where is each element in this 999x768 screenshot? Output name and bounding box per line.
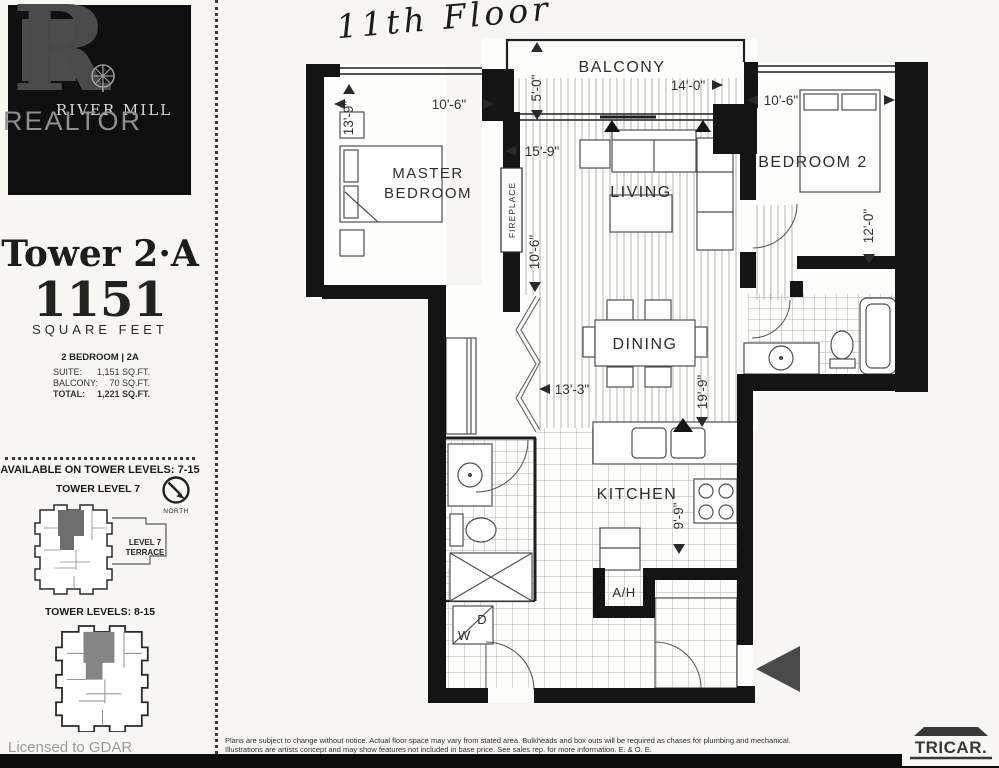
- living-label: LIVING: [610, 184, 671, 201]
- tower-levels-heading: TOWER LEVELS: 8-15: [20, 606, 180, 618]
- dim-living-width: 15'-9": [525, 144, 560, 159]
- bedroom2-pillow: [842, 94, 876, 110]
- dining-chair: [583, 327, 595, 357]
- waterwheel-icon: [88, 61, 118, 93]
- master-bedroom-label-2: BEDROOM: [384, 185, 472, 202]
- balcony-label: BALCONY: [579, 59, 666, 76]
- bedroom2-label: BEDROOM 2: [758, 154, 868, 171]
- bath-toilet-bowl: [831, 331, 853, 359]
- terrace-label-1: LEVEL 7: [129, 538, 162, 547]
- fireplace: FIREPLACE: [501, 168, 522, 252]
- dining-chair: [645, 367, 671, 387]
- floorplan-page: FIREPLACE BALCONY MASTER BEDROOM LIVING …: [0, 0, 999, 768]
- air-handler-label: A/H: [612, 585, 635, 600]
- rivermill-logo: R RIVER MILL: [8, 5, 191, 195]
- dining-label: DINING: [613, 336, 678, 353]
- dim-balcony-depth: 5'-0": [529, 74, 544, 101]
- bedroom2-pillow: [804, 94, 838, 110]
- kitchen-sink: [671, 428, 705, 458]
- keyplan-levels8-15: [30, 620, 175, 732]
- disclaimer-text: Plans are subject to change without noti…: [225, 736, 915, 754]
- bottom-bar: [0, 754, 999, 768]
- vertical-separator: [215, 0, 218, 754]
- dining-chair: [645, 300, 671, 320]
- kitchen-sink: [632, 428, 666, 458]
- armchair: [580, 140, 610, 168]
- dim-dining-depth: 19'-9": [695, 375, 710, 410]
- realtor-overlay-text: REALTOR: [3, 106, 142, 137]
- dim-master-width: 10'-6": [432, 97, 467, 112]
- fridge: [600, 528, 640, 570]
- disclaimer-line-2: Illustrations are artists concept and ma…: [225, 745, 915, 754]
- ensuite-sink-drain: [469, 474, 472, 477]
- stat-row-total: TOTAL: 1,221 SQ.FT.: [53, 389, 150, 400]
- tricar-logo-text: TRICAR.: [915, 738, 987, 757]
- area-value: 1151: [0, 272, 200, 328]
- stat-value: 1,221 SQ.FT.: [97, 389, 150, 400]
- dim-kitchen-depth: 9'-9": [671, 502, 686, 529]
- stat-label: BALCONY:: [53, 378, 98, 389]
- terrace-label-2: TERRACE: [126, 548, 165, 557]
- washer-label: W: [458, 628, 471, 643]
- tower-level7-heading: TOWER LEVEL 7: [18, 483, 178, 495]
- stat-label: SUITE:: [53, 367, 82, 378]
- dim-balcony-width: 14'-0": [671, 78, 706, 93]
- dim-living-depth: 10'-6": [527, 235, 542, 270]
- dotted-separator: [5, 457, 195, 460]
- tv-unit: [697, 138, 733, 250]
- master-nightstand: [340, 230, 364, 256]
- tower-title: Tower 2·A: [0, 233, 200, 275]
- fireplace-label: FIREPLACE: [507, 182, 517, 238]
- dim-bedroom2-depth: 12'-0": [861, 209, 876, 244]
- ensuite-toilet-tank: [450, 514, 463, 546]
- area-stats: SUITE: 1,151 SQ.FT. BALCONY: 70 SQ.FT. T…: [53, 367, 150, 400]
- entry-arrow: [756, 646, 800, 692]
- bath-toilet-base: [830, 359, 855, 368]
- tricar-logo: TRICAR.: [902, 722, 999, 766]
- availability-heading: AVAILABLE ON TOWER LEVELS: 7-15: [0, 464, 200, 476]
- dim-dining-width: 13'-3": [555, 382, 590, 397]
- dryer-label: D: [477, 612, 486, 627]
- dining-chair: [695, 327, 707, 357]
- ensuite-toilet-bowl: [466, 518, 496, 542]
- dim-bedroom2-width: 10'-6": [764, 93, 799, 108]
- unit-type: 2 BEDROOM | 2A: [0, 352, 200, 363]
- stat-value: 70 SQ.FT.: [109, 378, 150, 389]
- master-bedroom-label-1: MASTER: [392, 165, 464, 182]
- dining-chair: [607, 367, 633, 387]
- dining-chair: [607, 300, 633, 320]
- kitchen-island: [593, 422, 743, 464]
- stat-row-balcony: BALCONY: 70 SQ.FT.: [53, 378, 150, 389]
- stat-row-suite: SUITE: 1,151 SQ.FT.: [53, 367, 150, 378]
- area-label: SQUARE FEET: [0, 322, 200, 337]
- stat-value: 1,151 SQ.FT.: [97, 367, 150, 378]
- stat-label: TOTAL:: [53, 389, 85, 400]
- bath-sink-drain: [780, 357, 783, 360]
- keyplan-level7: LEVEL 7 TERRACE: [14, 498, 204, 602]
- disclaimer-line-1: Plans are subject to change without noti…: [225, 736, 915, 745]
- master-pillow: [344, 150, 358, 182]
- kitchen-label: KITCHEN: [597, 486, 678, 503]
